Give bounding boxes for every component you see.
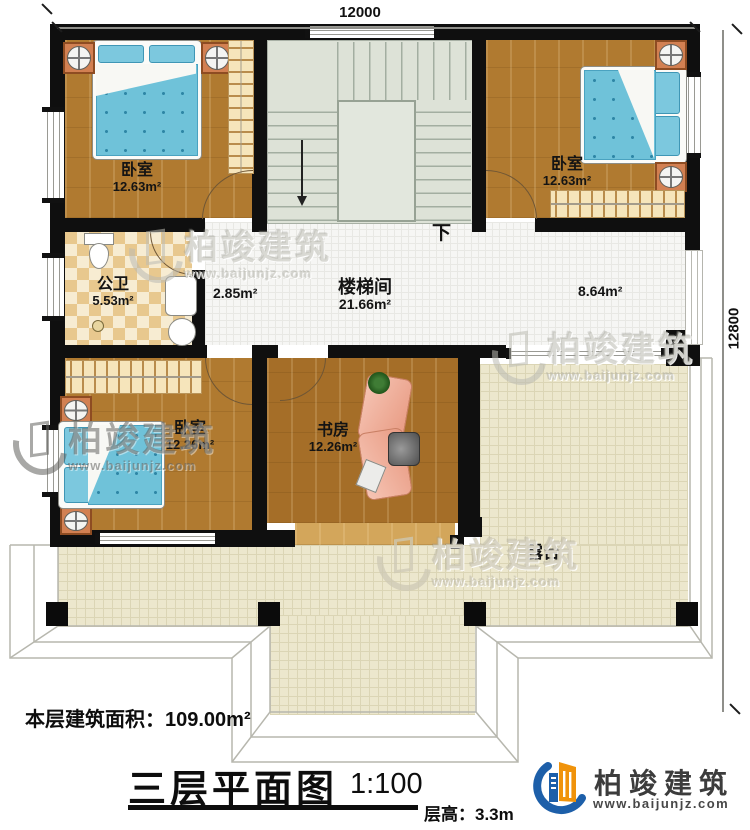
nightstand [63, 42, 95, 74]
pillow [652, 116, 680, 156]
room-label-bedroom-tr: 卧室12.63m² [512, 156, 622, 188]
plan-scale: 1:100 [350, 768, 423, 801]
floor-plan: 卧室12.63m² 卧室12.63m² 公卫5.53m² 2.85m² 楼梯间2… [0, 0, 750, 830]
brand-url: www.baijunjz.com [593, 796, 729, 811]
title-underline [128, 805, 418, 810]
wall-study-bottom-stub2 [450, 535, 464, 549]
floor-height-text: 层高：3.3m [424, 800, 514, 825]
nightstand [60, 507, 92, 535]
nightstand [655, 40, 687, 70]
dimension-line-right [722, 30, 724, 712]
stairs-down-label: 下 [432, 218, 451, 245]
room-label-stair-hall: 楼梯间21.66m² [310, 277, 420, 313]
terrace-pillar [258, 602, 280, 626]
pillow [652, 72, 680, 114]
wall-divider-bl-study [252, 358, 267, 532]
hall-area-label: 8.64m² [578, 283, 622, 299]
window-bedroomTL-left [42, 107, 64, 203]
wall-hall-bottom-b [252, 345, 278, 358]
room-label-terrace: 露台 [508, 543, 578, 562]
wall-bedroomTR-bottom [535, 218, 700, 232]
terrace-pillar [676, 602, 698, 626]
nightstand [655, 162, 687, 192]
wall-bedroomTL-bottom [50, 218, 205, 232]
room-label-bedroom-tl: 卧室12.63m² [82, 162, 192, 194]
terrace-pillar [464, 602, 486, 626]
window-hall-terrace [506, 348, 666, 359]
wall-study-bottom-stub [458, 517, 482, 537]
pillow [149, 45, 195, 63]
floor-drain [92, 320, 104, 332]
room-label-bathroom: 公卫5.53m² [58, 276, 168, 308]
window-bedroomBL-bottom [95, 533, 220, 544]
room-label-study: 书房12.26m² [278, 422, 388, 454]
dimension-right-label: 12800 [726, 289, 743, 369]
wall-bedroomTL-right [252, 24, 267, 232]
brand-logo-icon [532, 752, 590, 822]
shower [165, 276, 197, 316]
building-area-text: 本层建筑面积：109.00m² [25, 703, 251, 732]
wall-right-stub [685, 232, 700, 250]
office-chair [388, 432, 420, 466]
plant [368, 372, 390, 394]
wall-bedroomTR-left [472, 24, 486, 232]
pillow [98, 45, 144, 63]
wall-hall-bottom-a [50, 345, 207, 358]
terrace-pillar [46, 602, 68, 626]
room-label-bedroom-bl: 卧室12.26m² [135, 420, 245, 452]
dimension-top-label: 12000 [315, 4, 405, 21]
wardrobe [550, 190, 685, 218]
railing-hall-right [685, 250, 703, 345]
sink [168, 318, 196, 346]
wardrobe [65, 360, 202, 394]
wardrobe [228, 40, 254, 174]
corridor-area-label: 2.85m² [213, 285, 257, 301]
dimension-line-top [57, 27, 695, 29]
wall-study-right [458, 345, 480, 523]
